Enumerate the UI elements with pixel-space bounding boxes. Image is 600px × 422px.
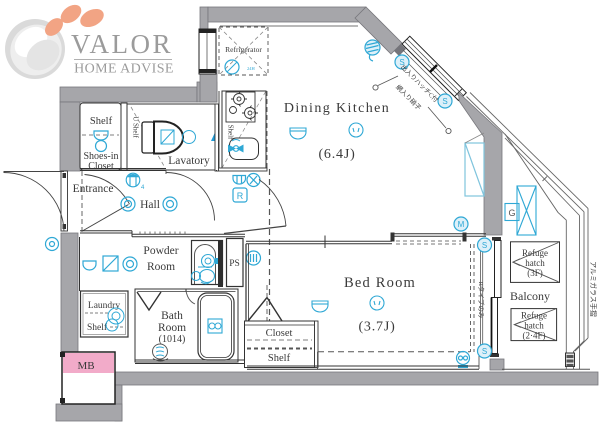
svg-text:Refuge: Refuge bbox=[522, 248, 548, 258]
svg-text:Refuge: Refuge bbox=[521, 311, 547, 321]
svg-text:Entrance: Entrance bbox=[73, 183, 114, 195]
svg-text:hatch: hatch bbox=[525, 258, 545, 268]
svg-text:M: M bbox=[458, 220, 465, 229]
svg-text:Refrigerator: Refrigerator bbox=[225, 45, 262, 54]
svg-text:HOME ADVISE: HOME ADVISE bbox=[74, 62, 174, 77]
svg-text:Hall: Hall bbox=[140, 199, 160, 211]
svg-text:Room: Room bbox=[158, 322, 186, 334]
svg-text:Shelf: Shelf bbox=[87, 322, 108, 333]
svg-text:Lavatory: Lavatory bbox=[168, 155, 210, 167]
svg-text:Shelf: Shelf bbox=[90, 116, 113, 127]
svg-text:Bed Room: Bed Room bbox=[344, 275, 416, 291]
svg-text:Shelf: Shelf bbox=[227, 125, 235, 140]
svg-text:Bath: Bath bbox=[161, 310, 183, 322]
svg-text:Dining Kitchen: Dining Kitchen bbox=[284, 101, 390, 116]
svg-text:Balcony: Balcony bbox=[510, 289, 550, 303]
svg-text:アルミガラス手摺: アルミガラス手摺 bbox=[589, 261, 598, 317]
svg-text:Room: Room bbox=[147, 261, 175, 273]
svg-text:PS: PS bbox=[229, 259, 240, 269]
svg-text:VALOR: VALOR bbox=[71, 29, 173, 59]
svg-text:Powder: Powder bbox=[143, 245, 178, 257]
svg-text:S: S bbox=[442, 97, 447, 106]
svg-text:(1014): (1014) bbox=[159, 334, 186, 345]
svg-text:Closet: Closet bbox=[266, 328, 293, 339]
svg-text:G: G bbox=[508, 208, 515, 218]
svg-text:24H: 24H bbox=[247, 66, 256, 71]
svg-text:S: S bbox=[482, 241, 487, 250]
svg-text:hatch: hatch bbox=[524, 321, 544, 331]
svg-text:(3.7J): (3.7J) bbox=[358, 320, 395, 335]
svg-text:(2·4F): (2·4F) bbox=[523, 331, 546, 341]
svg-text:Rタイプのみ: Rタイプのみ bbox=[477, 282, 486, 319]
svg-text:Laundry: Laundry bbox=[88, 301, 120, 311]
svg-text:(3F): (3F) bbox=[527, 268, 543, 278]
svg-text:Shelf: Shelf bbox=[268, 353, 291, 364]
svg-text:R: R bbox=[237, 191, 244, 201]
svg-text:(6.4J): (6.4J) bbox=[318, 147, 355, 162]
svg-text:MB: MB bbox=[77, 360, 94, 372]
svg-text:S: S bbox=[482, 347, 487, 356]
